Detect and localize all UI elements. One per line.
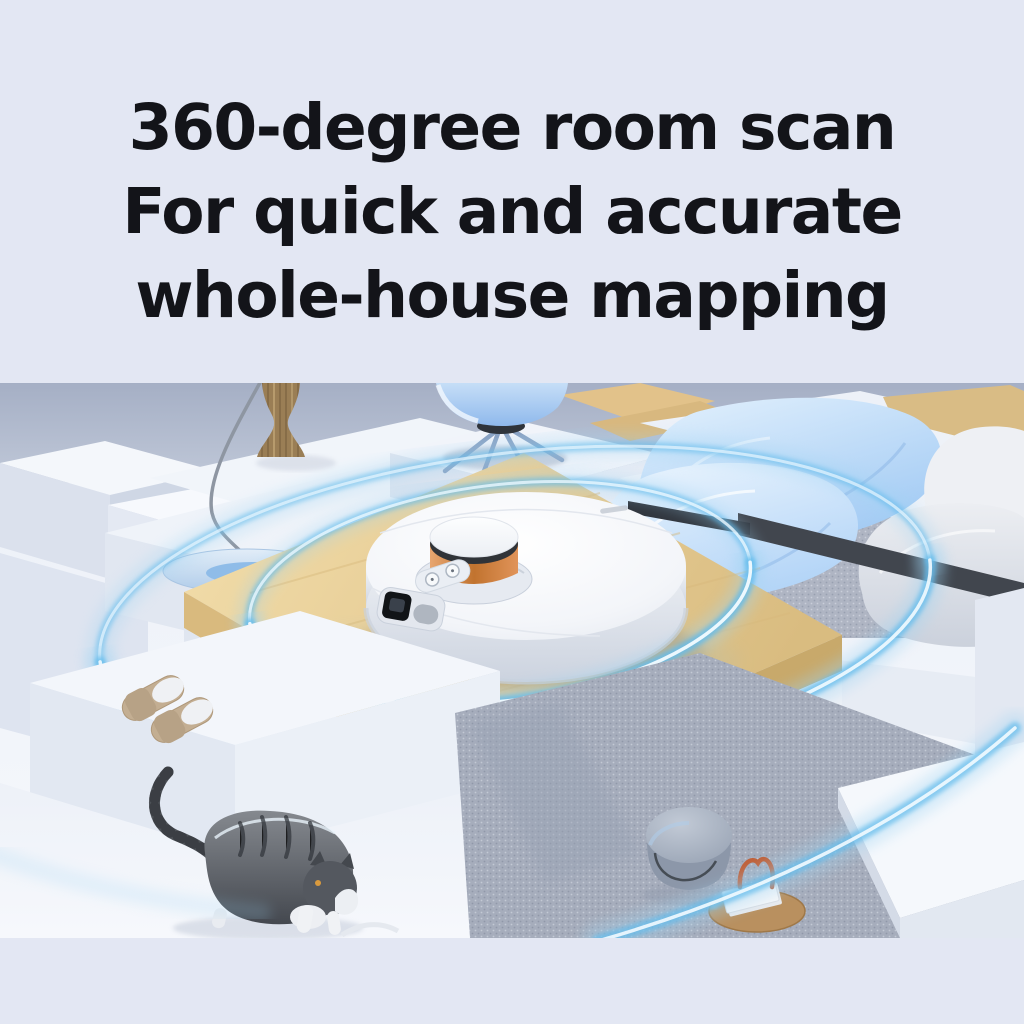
headline-line-2: For quick and accurate (122, 170, 901, 254)
headline-line-1: 360-degree room scan (122, 86, 901, 170)
headline: 360-degree room scan For quick and accur… (0, 0, 1024, 383)
page-title: 360-degree room scan For quick and accur… (122, 86, 901, 338)
product-photo (0, 383, 1024, 938)
marketing-banner: 360-degree room scan For quick and accur… (0, 0, 1024, 1024)
bottom-margin (0, 938, 1024, 1024)
headline-line-3: whole-house mapping (122, 254, 901, 338)
